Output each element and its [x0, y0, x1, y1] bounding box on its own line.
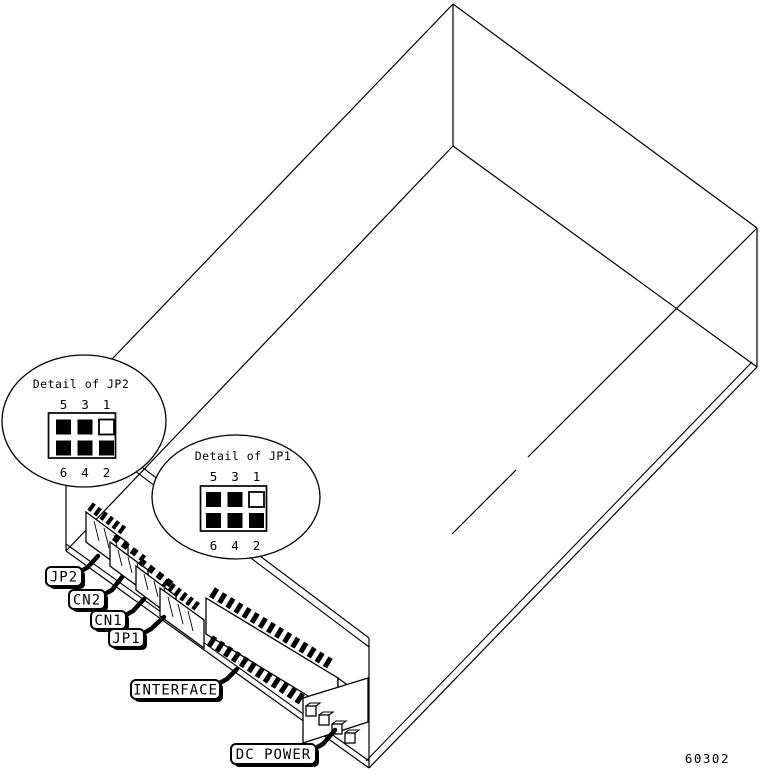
- jp2-pin-1: [99, 420, 114, 435]
- jp2-pin-label-6: 6: [60, 465, 68, 480]
- jp1-pin-label-1: 1: [253, 469, 261, 484]
- jp1-pin-label-2: 2: [253, 538, 261, 553]
- jp2-pin-label-4: 4: [81, 465, 89, 480]
- jp2-pin-label-1: 1: [103, 397, 111, 412]
- box-edge-top-front-right-b: [452, 470, 516, 534]
- jp2-leader-line: [80, 556, 98, 572]
- detail-bubble-jp2: Detail of JP2 5 3 1 6 4 2: [2, 355, 166, 487]
- jp1-pin-3: [228, 492, 243, 507]
- jp2-pin-label-5: 5: [60, 397, 68, 412]
- box-edge-top-right: [453, 4, 757, 228]
- jp2-pin-label-3: 3: [81, 397, 89, 412]
- jp1-pin-label-3: 3: [231, 469, 239, 484]
- jp2-pin-5: [56, 420, 71, 435]
- cn2-label: CN2: [73, 593, 101, 609]
- dc-pin-4: [345, 733, 355, 743]
- dc-pin-2: [319, 715, 329, 725]
- interface-label: INTERFACE: [133, 683, 218, 699]
- drive-box-wireframe: [66, 4, 757, 768]
- jp1-pin-2: [249, 513, 264, 528]
- jp2-label: JP2: [50, 570, 78, 586]
- jp1-label: JP1: [112, 631, 140, 647]
- interface-leader-line: [218, 669, 237, 684]
- drive-isometric-diagram: Detail of JP2 5 3 1 6 4 2 Detail of JP1 …: [0, 0, 761, 775]
- jp2-pin-2: [99, 441, 114, 456]
- cn1-leader-line: [124, 599, 144, 616]
- jp1-leader-line: [142, 617, 164, 634]
- bottom-edge-right-2: [366, 362, 752, 761]
- figure-60302: Detail of JP2 5 3 1 6 4 2 Detail of JP1 …: [0, 0, 761, 775]
- dc-power-label: DC POWER: [236, 747, 311, 763]
- jp1-pin-4: [228, 513, 243, 528]
- jp1-pin-label-6: 6: [210, 538, 218, 553]
- jp1-pin-label-4: 4: [231, 538, 239, 553]
- jp1-detail-title: Detail of JP1: [195, 449, 292, 463]
- jp1-pin-label-5: 5: [210, 469, 218, 484]
- jp1-pin-5: [206, 492, 221, 507]
- jp1-pin-6: [206, 513, 221, 528]
- dc-pin-1: [306, 706, 316, 716]
- jp2-pin-6: [56, 441, 71, 456]
- figure-number: 60302: [685, 751, 730, 766]
- box-edge-top-left: [66, 4, 453, 407]
- bottom-edge-right-1: [369, 367, 757, 768]
- jp2-detail-title: Detail of JP2: [33, 377, 130, 391]
- callout-interface: INTERFACE: [131, 669, 237, 702]
- jp2-pin-3: [78, 420, 93, 435]
- cn1-label: CN1: [94, 613, 122, 629]
- detail-bubble-jp1: Detail of JP1 5 3 1 6 4 2: [152, 435, 320, 559]
- jp2-pin-4: [78, 441, 93, 456]
- jp1-pin-1: [249, 492, 264, 507]
- box-edge-back-bottom-right: [453, 146, 757, 367]
- jp2-pin-label-2: 2: [103, 465, 111, 480]
